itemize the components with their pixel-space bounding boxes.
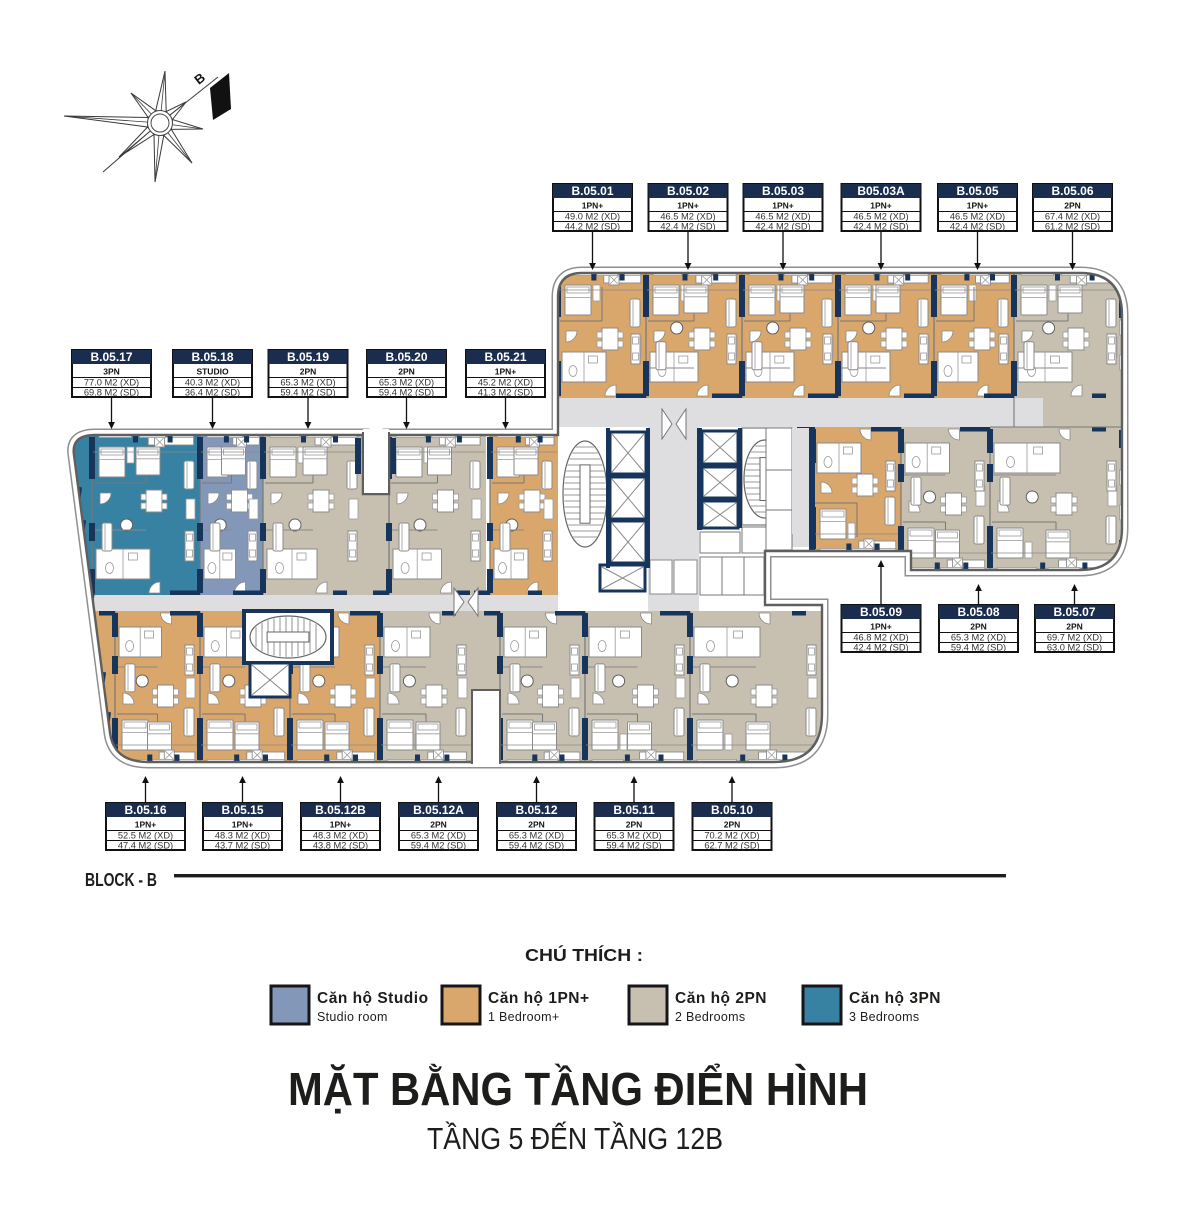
svg-text:65.3 M2 (XD): 65.3 M2 (XD) bbox=[606, 831, 661, 841]
svg-text:1PN+: 1PN+ bbox=[772, 200, 794, 210]
svg-text:49.0 M2 (XD): 49.0 M2 (XD) bbox=[565, 212, 620, 222]
svg-text:B.05.09: B.05.09 bbox=[860, 605, 902, 619]
svg-text:2PN: 2PN bbox=[398, 366, 415, 376]
svg-text:46.5 M2 (XD): 46.5 M2 (XD) bbox=[950, 212, 1005, 222]
svg-text:Căn hộ Studio: Căn hộ Studio bbox=[317, 990, 429, 1007]
svg-text:B.05.16: B.05.16 bbox=[124, 803, 166, 817]
svg-text:46.5 M2 (XD): 46.5 M2 (XD) bbox=[660, 212, 715, 222]
svg-text:2PN: 2PN bbox=[970, 621, 987, 631]
svg-text:63.0 M2 (SD): 63.0 M2 (SD) bbox=[1047, 642, 1102, 652]
svg-text:3PN: 3PN bbox=[103, 366, 120, 376]
svg-text:77.0 M2 (XD): 77.0 M2 (XD) bbox=[84, 378, 139, 388]
svg-text:1 Bedroom+: 1 Bedroom+ bbox=[488, 1010, 559, 1024]
svg-text:48.3 M2 (XD): 48.3 M2 (XD) bbox=[215, 831, 270, 841]
svg-text:B.05.05: B.05.05 bbox=[956, 184, 998, 198]
svg-text:B.05.08: B.05.08 bbox=[957, 605, 999, 619]
svg-text:CHÚ THÍCH :: CHÚ THÍCH : bbox=[525, 944, 643, 965]
svg-text:47.4 M2 (SD): 47.4 M2 (SD) bbox=[118, 840, 173, 850]
svg-text:42.4 M2 (SD): 42.4 M2 (SD) bbox=[950, 221, 1005, 231]
svg-text:Căn hộ 1PN+: Căn hộ 1PN+ bbox=[488, 990, 590, 1007]
svg-text:42.4 M2 (SD): 42.4 M2 (SD) bbox=[853, 221, 908, 231]
svg-text:59.4 M2 (SD): 59.4 M2 (SD) bbox=[379, 387, 434, 397]
svg-text:B.05.11: B.05.11 bbox=[613, 803, 655, 817]
svg-text:B.05.15: B.05.15 bbox=[221, 803, 263, 817]
svg-text:65.3 M2 (XD): 65.3 M2 (XD) bbox=[280, 378, 335, 388]
svg-text:B.05.21: B.05.21 bbox=[484, 350, 526, 364]
svg-text:B.05.19: B.05.19 bbox=[287, 350, 329, 364]
svg-text:B.05.01: B.05.01 bbox=[571, 184, 613, 198]
svg-text:1PN+: 1PN+ bbox=[330, 819, 352, 829]
svg-text:B.05.12B: B.05.12B bbox=[315, 803, 366, 817]
svg-text:1PN+: 1PN+ bbox=[967, 200, 989, 210]
svg-text:1PN+: 1PN+ bbox=[582, 200, 604, 210]
svg-text:62.7 M2 (SD): 62.7 M2 (SD) bbox=[704, 840, 759, 850]
svg-text:2PN: 2PN bbox=[1064, 200, 1081, 210]
svg-text:46.8 M2 (XD): 46.8 M2 (XD) bbox=[853, 633, 908, 643]
svg-text:1PN+: 1PN+ bbox=[870, 621, 892, 631]
svg-text:B.05.12A: B.05.12A bbox=[413, 803, 464, 817]
svg-text:42.4 M2 (SD): 42.4 M2 (SD) bbox=[660, 221, 715, 231]
svg-text:36.4 M2 (SD): 36.4 M2 (SD) bbox=[185, 387, 240, 397]
svg-text:B.05.07: B.05.07 bbox=[1053, 605, 1095, 619]
svg-text:69.8 M2 (SD): 69.8 M2 (SD) bbox=[84, 387, 139, 397]
svg-text:B.05.10: B.05.10 bbox=[711, 803, 753, 817]
svg-text:2PN: 2PN bbox=[1066, 621, 1083, 631]
svg-text:1PN+: 1PN+ bbox=[870, 200, 892, 210]
svg-text:42.4 M2 (SD): 42.4 M2 (SD) bbox=[853, 642, 908, 652]
svg-text:Studio room: Studio room bbox=[317, 1010, 388, 1024]
svg-text:40.3 M2 (XD): 40.3 M2 (XD) bbox=[185, 378, 240, 388]
svg-text:43.8 M2 (SD): 43.8 M2 (SD) bbox=[313, 840, 368, 850]
svg-text:B.05.12: B.05.12 bbox=[515, 803, 557, 817]
svg-text:65.3 M2 (XD): 65.3 M2 (XD) bbox=[379, 378, 434, 388]
svg-text:B.05.02: B.05.02 bbox=[667, 184, 709, 198]
svg-text:67.4 M2 (XD): 67.4 M2 (XD) bbox=[1045, 212, 1100, 222]
svg-text:69.7 M2 (XD): 69.7 M2 (XD) bbox=[1047, 633, 1102, 643]
svg-text:59.4 M2 (SD): 59.4 M2 (SD) bbox=[509, 840, 564, 850]
svg-text:B.05.18: B.05.18 bbox=[191, 350, 233, 364]
svg-text:MẶT BẰNG TẦNG ĐIỂN HÌNH: MẶT BẰNG TẦNG ĐIỂN HÌNH bbox=[288, 1063, 868, 1115]
svg-text:43.7 M2 (SD): 43.7 M2 (SD) bbox=[215, 840, 270, 850]
svg-text:48.3 M2 (XD): 48.3 M2 (XD) bbox=[313, 831, 368, 841]
svg-text:41.3 M2 (SD): 41.3 M2 (SD) bbox=[478, 387, 533, 397]
svg-text:BLOCK - B: BLOCK - B bbox=[85, 870, 157, 890]
svg-text:1PN+: 1PN+ bbox=[495, 366, 517, 376]
svg-text:59.4 M2 (SD): 59.4 M2 (SD) bbox=[951, 642, 1006, 652]
svg-text:B.05.17: B.05.17 bbox=[90, 350, 132, 364]
svg-text:1PN+: 1PN+ bbox=[232, 819, 254, 829]
svg-text:2PN: 2PN bbox=[430, 819, 447, 829]
svg-text:45.2 M2 (XD): 45.2 M2 (XD) bbox=[478, 378, 533, 388]
svg-text:B.05.20: B.05.20 bbox=[385, 350, 427, 364]
svg-text:52.5 M2 (XD): 52.5 M2 (XD) bbox=[118, 831, 173, 841]
svg-text:2PN: 2PN bbox=[300, 366, 317, 376]
svg-text:2PN: 2PN bbox=[528, 819, 545, 829]
svg-text:59.4 M2 (SD): 59.4 M2 (SD) bbox=[606, 840, 661, 850]
svg-text:65.3 M2 (XD): 65.3 M2 (XD) bbox=[951, 633, 1006, 643]
svg-text:65.3 M2 (XD): 65.3 M2 (XD) bbox=[509, 831, 564, 841]
svg-text:46.5 M2 (XD): 46.5 M2 (XD) bbox=[755, 212, 810, 222]
svg-text:B05.03A: B05.03A bbox=[857, 184, 905, 198]
svg-text:1PN+: 1PN+ bbox=[677, 200, 699, 210]
svg-text:2PN: 2PN bbox=[626, 819, 643, 829]
svg-text:65.3 M2 (XD): 65.3 M2 (XD) bbox=[411, 831, 466, 841]
svg-text:TẦNG 5 ĐẾN TẦNG 12B: TẦNG 5 ĐẾN TẦNG 12B bbox=[427, 1121, 723, 1156]
svg-text:B.05.03: B.05.03 bbox=[762, 184, 804, 198]
svg-text:2PN: 2PN bbox=[724, 819, 741, 829]
svg-text:70.2 M2 (XD): 70.2 M2 (XD) bbox=[704, 831, 759, 841]
svg-text:42.4 M2 (SD): 42.4 M2 (SD) bbox=[755, 221, 810, 231]
svg-text:1PN+: 1PN+ bbox=[135, 819, 157, 829]
svg-text:61.2 M2 (SD): 61.2 M2 (SD) bbox=[1045, 221, 1100, 231]
svg-text:59.4 M2 (SD): 59.4 M2 (SD) bbox=[280, 387, 335, 397]
svg-text:Căn hộ 3PN: Căn hộ 3PN bbox=[849, 990, 941, 1007]
svg-text:B.05.06: B.05.06 bbox=[1051, 184, 1093, 198]
svg-text:2 Bedrooms: 2 Bedrooms bbox=[675, 1010, 745, 1024]
svg-text:STUDIO: STUDIO bbox=[196, 366, 229, 376]
svg-text:46.5 M2 (XD): 46.5 M2 (XD) bbox=[853, 212, 908, 222]
svg-text:3 Bedrooms: 3 Bedrooms bbox=[849, 1010, 919, 1024]
svg-text:44.2 M2 (SD): 44.2 M2 (SD) bbox=[565, 221, 620, 231]
svg-text:59.4 M2 (SD): 59.4 M2 (SD) bbox=[411, 840, 466, 850]
svg-text:Căn hộ 2PN: Căn hộ 2PN bbox=[675, 990, 767, 1007]
